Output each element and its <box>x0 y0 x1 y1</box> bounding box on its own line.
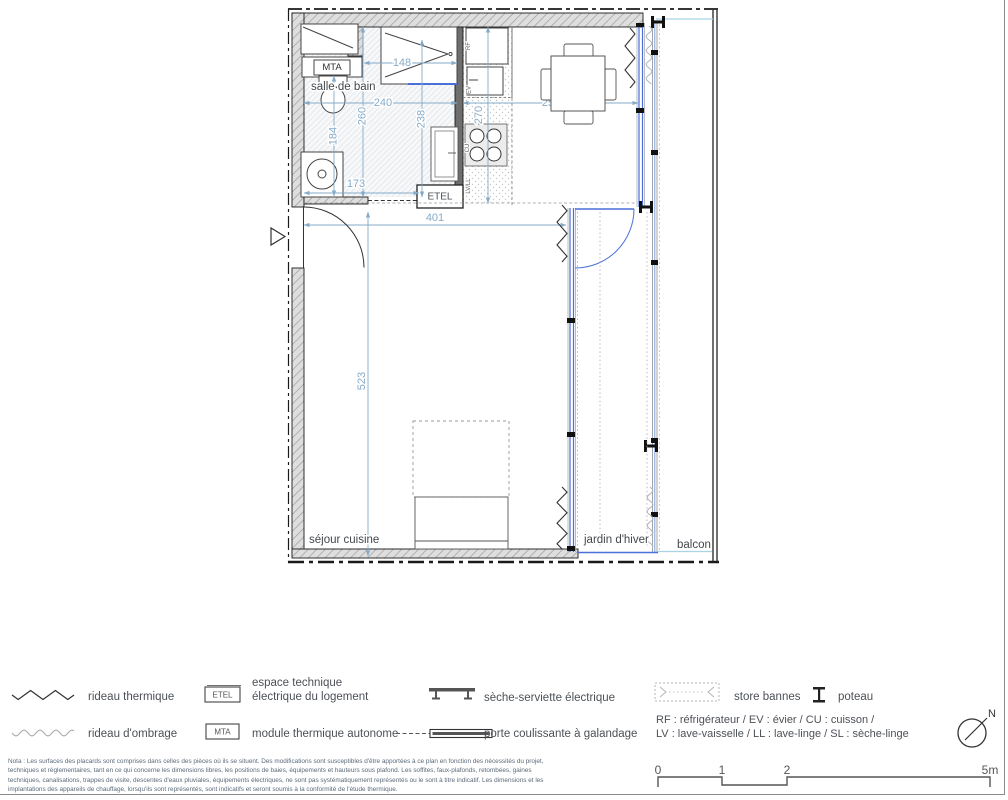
dishwasher-washer-label: LV/LL <box>466 178 472 194</box>
shower <box>381 27 457 84</box>
entrance-arrow <box>271 228 285 245</box>
balcony-glass-lines <box>656 19 713 552</box>
scale-0: 0 <box>655 763 662 777</box>
sink-label: EV <box>467 86 473 94</box>
scale-5m: 5m <box>982 763 999 777</box>
legend-abbr-1: RF : réfrigérateur / EV : évier / CU : c… <box>656 714 874 726</box>
thermal-curtain-top <box>625 28 635 88</box>
north-indicator: N <box>950 705 1002 755</box>
sliding-door-icon <box>396 728 496 739</box>
entry-door <box>304 207 365 268</box>
bed <box>415 497 508 549</box>
cooktop <box>465 124 507 166</box>
placard-dashed <box>413 421 509 497</box>
towel-dryer-icon <box>429 688 477 701</box>
poteau-icon <box>812 687 828 705</box>
etel-icon: ETEL <box>203 684 245 705</box>
room-label-sejour: séjour cuisine <box>309 534 379 546</box>
thermal-curtain-mid <box>557 205 567 262</box>
fridge <box>466 28 508 64</box>
room-label-jardin: jardin d'hiver <box>583 534 649 546</box>
fridge-label: RF <box>466 42 472 50</box>
post-middle <box>639 201 653 213</box>
legend-rideau-thermique: rideau thermique <box>88 691 174 703</box>
dim-kitchen-depth: 270 <box>473 106 485 124</box>
legend-mta-desc: module thermique autonome <box>252 728 398 740</box>
vanity-sink <box>301 24 358 54</box>
dining-table <box>551 56 605 111</box>
legend-etel-desc-2: électrique du logement <box>252 691 368 703</box>
legend-rideau-ombrage: rideau d'ombrage <box>88 728 177 740</box>
north-label: N <box>988 708 996 720</box>
dim-bath-width: 240 <box>374 97 392 109</box>
legend-porte-coulissante: porte coulissante à galandage <box>484 728 637 740</box>
etel-box-label: ETEL <box>427 192 452 203</box>
scale-bar: 0 1 2 5m <box>648 760 1008 794</box>
dim-bath-depth-left: 260 <box>357 107 369 125</box>
thermal-curtain-bottom <box>557 487 567 549</box>
glazed-door <box>575 209 634 268</box>
dim-bath-depth-right: 238 <box>416 110 428 128</box>
floor-plan: ETEL MTA RF EV CU LV/LL <box>0 0 1008 672</box>
dim-sejour-depth: 523 <box>356 372 368 390</box>
legend-abbr-2: LV : lave-vaisselle / LL : lave-linge / … <box>656 728 909 740</box>
nota-line-3: techniques, canalisations, trappes de vi… <box>8 776 544 785</box>
dim-hall-width: 401 <box>426 212 444 224</box>
legend-store-bannes: store bannes <box>734 691 801 703</box>
shade-curtain-icon <box>10 727 78 740</box>
sheet-frame-bottom <box>0 794 1005 795</box>
thermal-curtain-icon <box>10 687 78 703</box>
towel-dryer <box>431 127 458 181</box>
store-bannes-icon <box>654 682 722 703</box>
dim-bath-bottom: 173 <box>347 178 365 190</box>
dim-bath-left: 184 <box>328 127 340 145</box>
nota-text: Nota : Les surfaces des placards sont co… <box>8 757 544 795</box>
scale-1: 1 <box>719 763 726 777</box>
etel-box-plan: ETEL <box>417 185 463 208</box>
sheet-frame-right <box>1004 0 1005 795</box>
room-label-bathroom: salle de bain <box>311 81 376 93</box>
washing-machine <box>301 152 343 197</box>
legend-poteau: poteau <box>838 691 873 703</box>
mta-box-label: MTA <box>322 62 342 73</box>
legend-seche-serviette: sèche-serviette électrique <box>484 692 615 704</box>
svg-text:ETEL: ETEL <box>212 691 233 700</box>
balcony-edge <box>713 10 717 562</box>
mta-icon: MTA <box>204 722 244 742</box>
dim-shower-width: 148 <box>393 57 411 69</box>
jardin-dotted-guides <box>578 212 648 548</box>
post-top <box>651 16 665 28</box>
cooktop-label: CU <box>465 144 471 153</box>
nota-line-2: techniques et réglementaires, tant en ce… <box>8 766 544 775</box>
svg-text:MTA: MTA <box>214 728 231 737</box>
room-label-balcon: balcon <box>677 539 711 551</box>
scale-2: 2 <box>784 763 791 777</box>
nota-line-1: Nota : Les surfaces des placards sont co… <box>8 757 544 766</box>
legend-etel-desc-1: espace technique <box>252 677 342 689</box>
